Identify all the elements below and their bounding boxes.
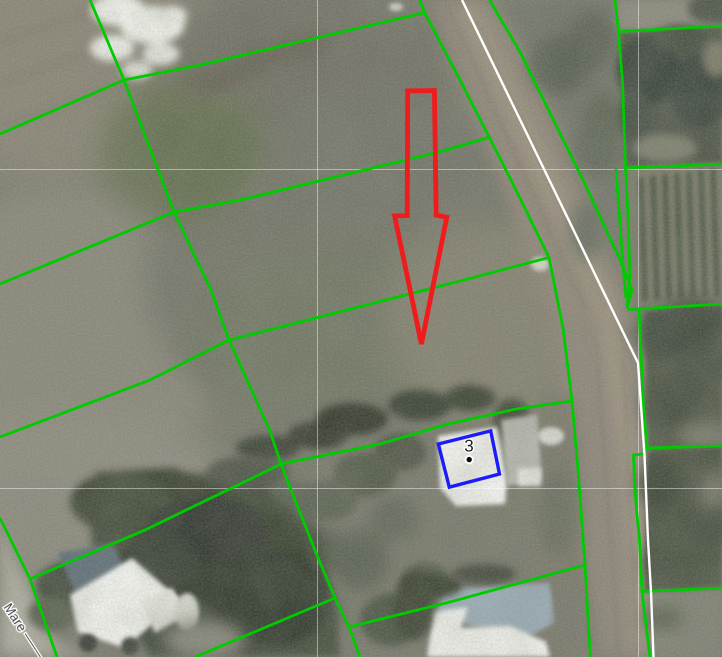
svg-text:3: 3: [464, 437, 473, 456]
